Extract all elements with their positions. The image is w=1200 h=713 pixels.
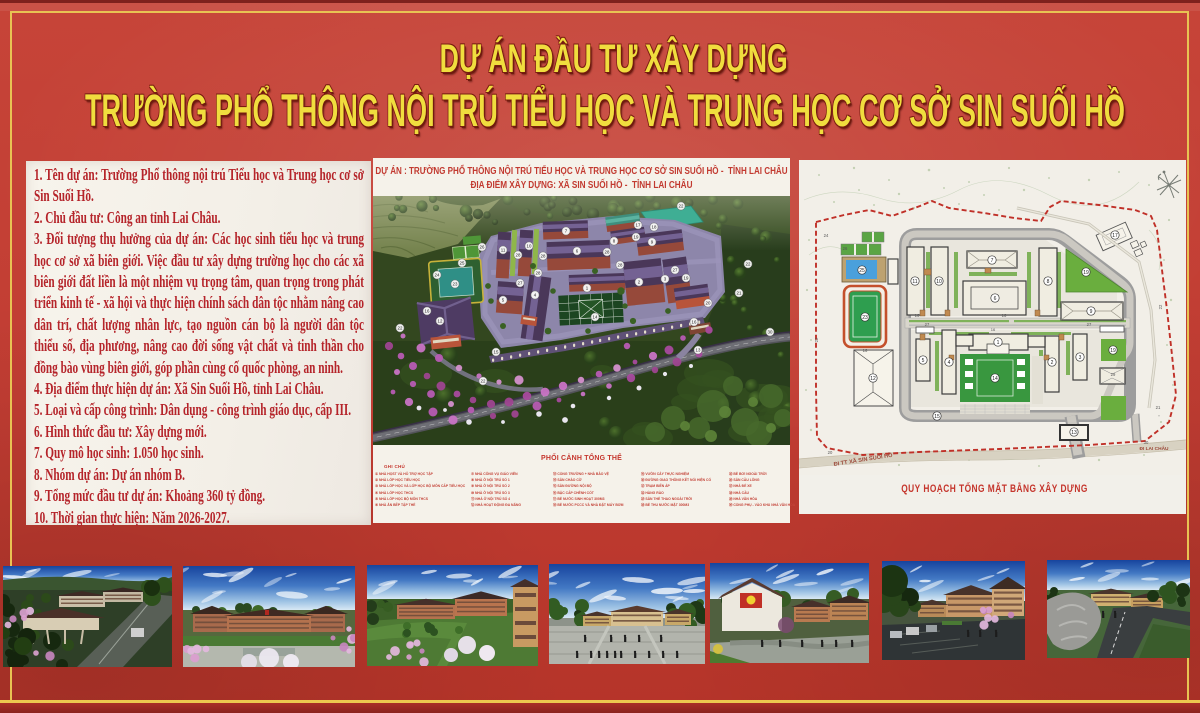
svg-text:20: 20 [706, 301, 711, 306]
svg-text:16: 16 [863, 348, 868, 353]
svg-text:10: 10 [936, 279, 942, 285]
svg-text:25: 25 [859, 268, 865, 274]
svg-text:27: 27 [925, 322, 930, 327]
svg-text:27: 27 [518, 281, 523, 286]
svg-text:7: 7 [991, 258, 994, 264]
svg-text:14: 14 [593, 315, 598, 320]
svg-text:16: 16 [915, 313, 920, 318]
svg-text:5: 5 [922, 358, 925, 364]
svg-text:13: 13 [696, 348, 701, 353]
svg-text:10: 10 [527, 244, 532, 249]
svg-text:1: 1 [997, 340, 1000, 346]
svg-text:24: 24 [824, 233, 829, 238]
svg-text:12: 12 [870, 376, 876, 382]
svg-text:15: 15 [934, 414, 940, 420]
svg-text:3: 3 [1079, 355, 1082, 361]
svg-text:9: 9 [1090, 309, 1093, 315]
svg-text:12: 12 [438, 319, 443, 324]
svg-text:28: 28 [536, 271, 541, 276]
svg-text:30: 30 [768, 330, 773, 335]
svg-text:28: 28 [618, 263, 623, 268]
svg-text:28: 28 [516, 253, 521, 258]
svg-text:ĐI LAI CHÂU: ĐI LAI CHÂU [1139, 445, 1169, 452]
svg-text:19: 19 [1083, 270, 1089, 276]
svg-text:26: 26 [843, 246, 848, 251]
svg-text:22: 22 [814, 337, 819, 342]
svg-text:17: 17 [636, 223, 641, 228]
svg-text:13: 13 [1071, 430, 1077, 436]
svg-text:20: 20 [828, 450, 833, 455]
svg-text:21: 21 [737, 291, 742, 296]
svg-text:16: 16 [1002, 313, 1007, 318]
svg-text:28: 28 [605, 250, 610, 255]
svg-text:23: 23 [453, 282, 458, 287]
svg-text:8: 8 [1047, 279, 1050, 285]
svg-text:6: 6 [994, 296, 997, 302]
svg-text:11: 11 [912, 279, 917, 285]
svg-text:14: 14 [992, 376, 998, 382]
svg-text:22: 22 [481, 379, 486, 384]
svg-text:2: 2 [1051, 360, 1054, 366]
svg-text:4: 4 [948, 360, 951, 366]
svg-text:22: 22 [679, 204, 684, 209]
svg-text:22: 22 [746, 262, 751, 267]
svg-text:18: 18 [652, 225, 657, 230]
svg-text:19: 19 [634, 235, 639, 240]
svg-text:30: 30 [1144, 440, 1149, 445]
svg-text:16: 16 [991, 327, 996, 332]
svg-text:21: 21 [1156, 405, 1161, 410]
svg-text:27: 27 [673, 268, 678, 273]
svg-text:19: 19 [684, 276, 689, 281]
svg-text:22: 22 [1158, 304, 1163, 309]
svg-text:11: 11 [501, 248, 506, 253]
svg-text:24: 24 [435, 273, 440, 278]
svg-text:26: 26 [480, 245, 485, 250]
svg-text:25: 25 [460, 261, 465, 266]
svg-text:19: 19 [1110, 348, 1116, 354]
svg-text:23: 23 [862, 315, 868, 321]
svg-text:15: 15 [494, 350, 499, 355]
svg-text:27: 27 [1087, 322, 1092, 327]
svg-text:16: 16 [692, 320, 697, 325]
svg-text:17: 17 [1112, 233, 1118, 239]
svg-text:28: 28 [541, 254, 546, 259]
svg-text:22: 22 [398, 326, 403, 331]
svg-text:16: 16 [425, 309, 430, 314]
svg-text:29: 29 [1111, 372, 1116, 377]
